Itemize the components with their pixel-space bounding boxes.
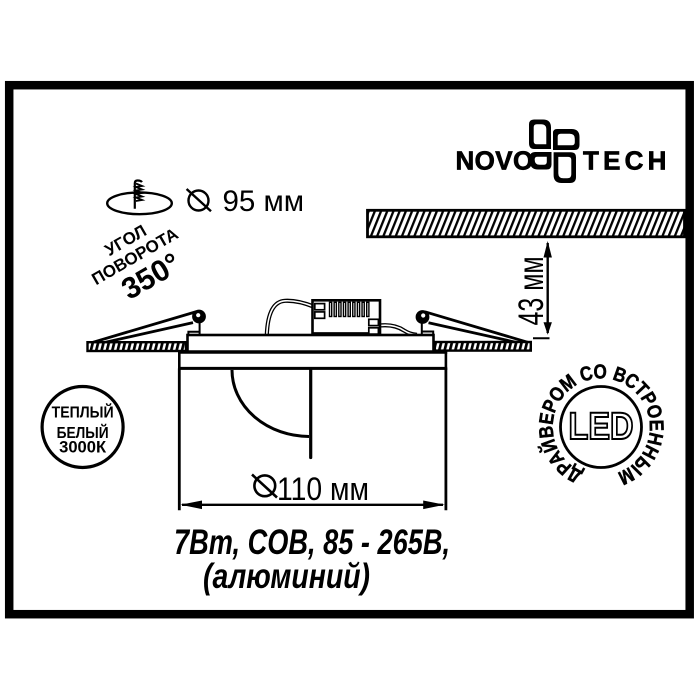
svg-text:(алюминий): (алюминий): [203, 557, 370, 596]
svg-text:LED: LED: [569, 406, 634, 448]
svg-text:ТЕПЛЫЙ: ТЕПЛЫЙ: [52, 403, 114, 422]
svg-text:95 мм: 95 мм: [223, 185, 305, 218]
svg-text:TECH: TECH: [583, 146, 671, 176]
svg-text:43 мм: 43 мм: [512, 257, 551, 326]
svg-text:3000К: 3000К: [59, 438, 107, 457]
svg-text:NOVO: NOVO: [456, 146, 534, 176]
svg-text:110 мм: 110 мм: [277, 471, 369, 507]
